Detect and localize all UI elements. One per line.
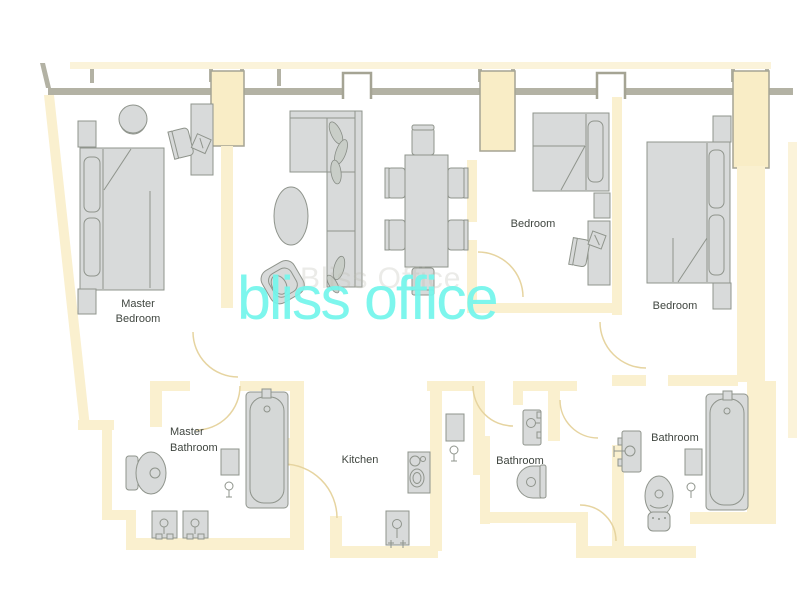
nightstand-icon <box>713 116 731 142</box>
window-icon <box>597 73 625 99</box>
room-label-bedroom-middle: Bedroom <box>500 217 566 232</box>
kitchen-fixtures <box>386 452 430 548</box>
interior-wall-line <box>48 88 793 95</box>
sink-icon <box>614 431 641 472</box>
toilet-icon <box>645 476 673 531</box>
nightstand-icon <box>78 121 96 147</box>
floor-plan: Master Bedroom Bedroom Bedroom Master Ba… <box>0 0 800 600</box>
desk-icon <box>588 221 610 285</box>
double-bed-icon <box>80 148 164 290</box>
shower-head-icon <box>450 446 458 461</box>
bathtub-icon <box>246 389 288 508</box>
room-label-master-bedroom: Master Bedroom <box>100 297 176 327</box>
round-chair-icon <box>119 105 147 134</box>
middle-bedroom-furniture <box>533 113 610 285</box>
room-label-kitchen: Kitchen <box>330 453 390 468</box>
wall-pillar <box>480 71 515 151</box>
closet-fixtures <box>446 414 464 461</box>
window-icon <box>343 73 371 99</box>
toilet-icon <box>126 452 166 494</box>
single-bed-icon <box>533 113 609 191</box>
oval-rug-icon <box>274 187 308 245</box>
dining-chair-icon <box>448 168 465 198</box>
door-arc-icon <box>560 400 598 438</box>
master-bedroom-furniture <box>78 104 213 314</box>
dining-chair-icon <box>388 220 405 250</box>
dining-chair-icon <box>388 168 405 198</box>
bathtub-icon <box>706 391 748 510</box>
desk-chair-icon <box>569 238 590 268</box>
room-label-bedroom-right: Bedroom <box>642 299 708 314</box>
sink-vanity-icon <box>183 511 208 539</box>
dining-chair-icon <box>412 128 434 155</box>
nightstand-icon <box>594 193 610 218</box>
stove-icon <box>408 452 430 493</box>
shower-head-icon <box>687 483 695 498</box>
door-arc-icon <box>600 322 646 368</box>
dining-table-icon <box>405 155 448 267</box>
cabinet-icon <box>685 449 702 475</box>
room-label-master-bathroom: Master Bathroom <box>170 424 250 456</box>
sink-vanity-icon <box>152 511 177 539</box>
door-arc-icon <box>193 332 238 377</box>
room-label-bathroom-middle: Bathroom <box>490 454 550 469</box>
shower-head-icon <box>225 482 233 497</box>
exterior-wall <box>70 62 771 69</box>
wall-pillar <box>211 71 244 146</box>
wall-pillar <box>733 71 769 168</box>
toilet-icon <box>517 465 546 498</box>
watermark-text: bliss office <box>237 268 497 329</box>
room-label-bathroom-right: Bathroom <box>645 431 705 446</box>
cabinet-icon <box>446 414 464 441</box>
nightstand-icon <box>713 283 731 309</box>
right-bedroom-furniture <box>647 116 731 309</box>
sink-icon <box>523 410 541 445</box>
kitchen-sink-icon <box>386 511 409 548</box>
nightstand-icon <box>78 289 96 314</box>
dining-chair-icon <box>448 220 465 250</box>
desk-chair-icon <box>168 127 194 159</box>
double-bed-icon <box>647 142 730 283</box>
right-bathroom-fixtures <box>614 391 748 531</box>
